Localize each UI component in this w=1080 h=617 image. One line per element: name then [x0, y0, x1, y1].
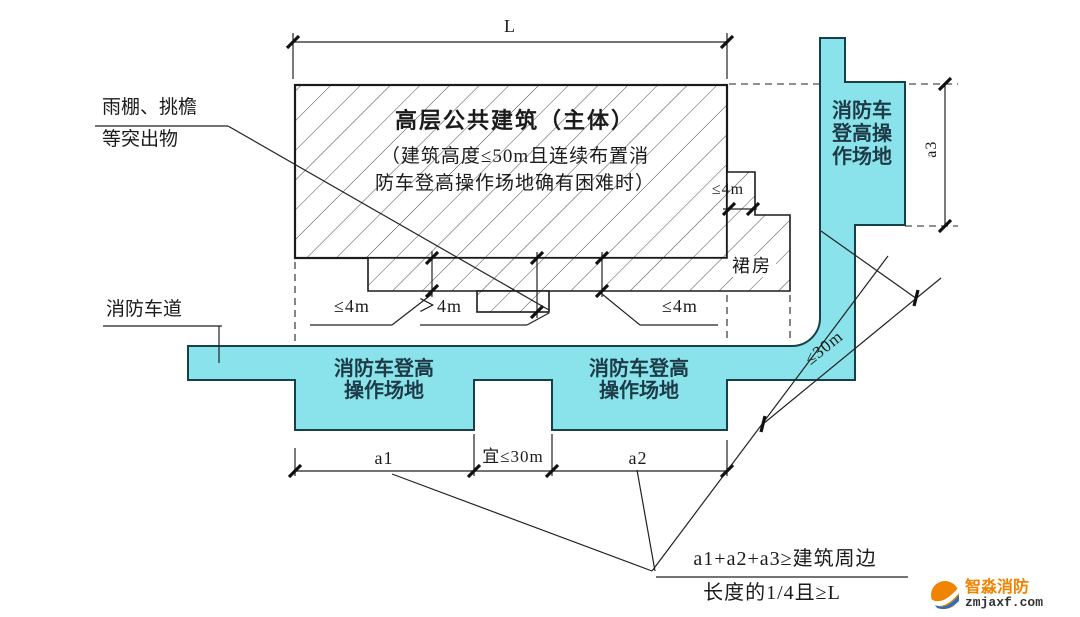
site-left-line1: 消防车登高 [294, 358, 474, 380]
site-vertical-line2: 登高操 [818, 123, 906, 146]
watermark-logo-icon [930, 580, 960, 610]
site-vertical-line1: 消防车 [818, 100, 906, 123]
dim-band-right-label: ≤4m [640, 296, 720, 317]
watermark-brand: 智淼消防 [965, 580, 1043, 596]
building-note-line2: 防车登高操作场地确有困难时） [310, 173, 720, 195]
site-vertical-label: 消防车 登高操 作场地 [818, 100, 906, 169]
site-vertical-line3: 作场地 [818, 146, 906, 169]
podium-label: 裙房 [728, 256, 776, 277]
watermark: 智淼消防 zmjaxf.com [930, 580, 1043, 610]
site-right-label: 消防车登高 操作场地 [549, 358, 729, 402]
dim-gap-label: 宜≤30m [467, 447, 559, 467]
site-left-line2: 操作场地 [294, 380, 474, 402]
dim-column-label: ＞4m [398, 296, 482, 317]
building-note-line1: （建筑高度≤50m且连续布置消 [310, 146, 720, 168]
building-title: 高层公共建筑（主体） [320, 108, 710, 133]
dim-top-length-label: L [495, 16, 525, 37]
site-left-label: 消防车登高 操作场地 [294, 358, 474, 402]
fire-lane-label: 消防车道 [106, 299, 182, 321]
site-right-line1: 消防车登高 [549, 358, 729, 380]
formula-line1: a1+a2+a3≥建筑周边 [662, 548, 908, 571]
site-right-line2: 操作场地 [549, 380, 729, 402]
dim-side-step-label: ≤4m [700, 181, 756, 199]
dim-band-left-label: ≤4m [312, 296, 392, 317]
protrusion-label-line1: 雨棚、挑檐 [102, 97, 197, 119]
dim-a3-label: a3 [923, 129, 941, 169]
dim-a2-label: a2 [618, 448, 658, 469]
formula-line2: 长度的1/4且≥L [662, 582, 882, 605]
protrusion-label-line2: 等突出物 [102, 129, 178, 151]
fire-access-diagram: L 高层公共建筑（主体） （建筑高度≤50m且连续布置消 防车登高操作场地确有困… [0, 0, 1080, 617]
dim-a1-label: a1 [364, 448, 404, 469]
watermark-site: zmjaxf.com [965, 596, 1043, 610]
